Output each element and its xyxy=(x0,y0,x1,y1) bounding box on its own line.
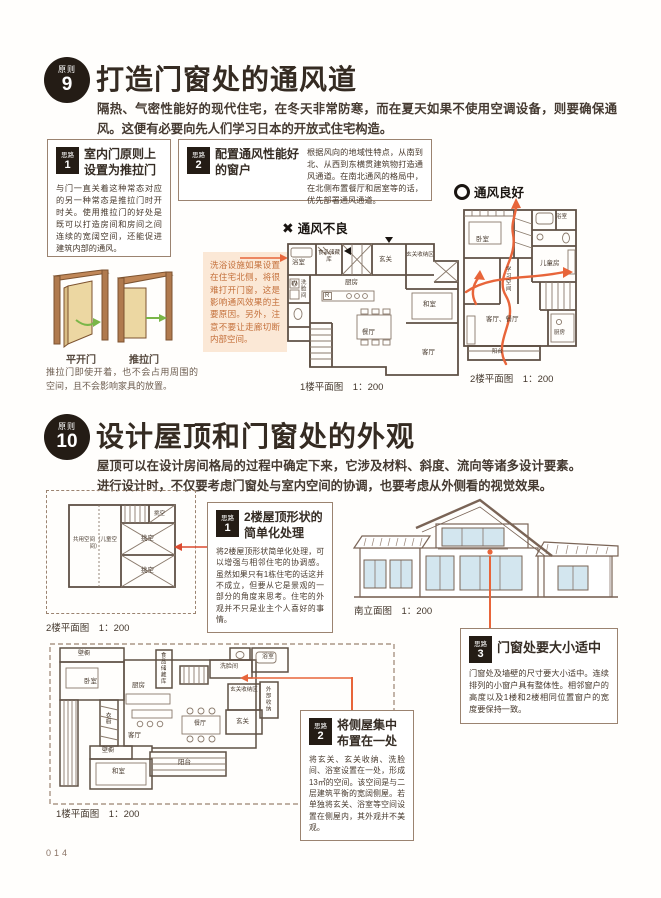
sliding-door-label: 推拉门 xyxy=(129,351,159,366)
room-label: 挑空 xyxy=(141,535,154,543)
principle10-title: 设计屋顶和门窗处的外观 xyxy=(96,415,415,455)
plan-1f-p10-caption: 1楼平面图 1：200 xyxy=(56,806,139,820)
principle10-badge: 原则 10 xyxy=(44,414,90,460)
south-elevation-drawing xyxy=(352,490,620,606)
plan-2f-p9: 卧室 浴室 儿童房 学习空间 客厅、餐厅 厨房 阳台 xyxy=(456,198,584,368)
p9-idea2-body: 根据风向的地域性特点，从南到北、从西到东横贯建筑物打造通风通道。在南北通风的格局… xyxy=(307,147,423,193)
plan-2f-p10-caption: 2楼平面图 1：200 xyxy=(46,620,129,634)
book-page: 原则 9 打造门窗处的通风道 隔热、气密性能好的现代住宅，在冬天非常防寒，而在夏… xyxy=(0,0,661,898)
p10-idea3-body: 门窗处及墙壁的尺寸要大小适中。连续排列的小窗户具有整体性。相邻窗户的高度以及1楼… xyxy=(469,668,609,716)
room-label: 客厅、餐厅 xyxy=(486,316,519,324)
p9-idea1-box: 思路 1 室内门原则上设置为推拉门 与门一直关着这种常态对应的另一种常态是推拉门… xyxy=(47,139,171,257)
room-label: 厨房 xyxy=(554,330,565,337)
elevation-caption: 南立面图 1：200 xyxy=(354,603,432,617)
principle9-badge: 原则 9 xyxy=(44,57,90,103)
p10-idea3-heading: 门窗处要大小适中 xyxy=(497,636,601,657)
airflow-arrows xyxy=(466,208,564,364)
p10-idea2-badge: 思路 2 xyxy=(309,718,332,745)
door-types-illustration xyxy=(48,262,196,350)
p9-idea2-badge-label: 思路 xyxy=(187,149,210,159)
p10-idea2-badge-number: 2 xyxy=(309,730,332,742)
p10-idea1-header: 思路 1 2楼屋顶形状的简单化处理 xyxy=(216,510,324,541)
room-label: 浴室 xyxy=(556,214,567,221)
plan-1f-p9-caption: 1楼平面图 1：200 xyxy=(300,379,383,393)
room-label: 厨房 xyxy=(345,279,358,287)
room-label: 挑空 xyxy=(141,567,154,575)
room-label: 玄关 xyxy=(236,718,249,726)
south-elevation xyxy=(352,490,620,606)
p10-idea1-body: 将2楼屋顶形状简单化处理，可以增强与相邻住宅的协调感。虽然如果只有1栋住宅的话这… xyxy=(216,546,324,625)
p9-idea2-badge: 思路 2 xyxy=(187,147,210,174)
room-label: 挑空 xyxy=(154,511,165,518)
idea3-connector-line xyxy=(489,556,491,630)
room-label: 壁橱 xyxy=(78,651,90,658)
room-label: 和室 xyxy=(423,301,436,309)
p10-idea3-badge-number: 3 xyxy=(469,648,492,660)
room-label: 阳台 xyxy=(178,759,191,767)
p10-idea1-box: 思路 1 2楼屋顶形状的简单化处理 将2楼屋顶形状简单化处理，可以增强与相邻住宅… xyxy=(207,502,333,633)
room-label: 食品储藏库 xyxy=(316,250,342,263)
annotation-arrow xyxy=(238,252,290,264)
room-label: 食品储藏库 xyxy=(159,652,166,685)
plan-1f-p9: 浴室 食品储藏库 玄关 玄关收纳区 洗脸间 厨房 和室 餐厅 客厅 R W xyxy=(285,235,461,377)
hinged-door-drawing xyxy=(54,270,108,347)
p9-idea2-badge-number: 2 xyxy=(187,159,210,171)
room-label: 玄关收纳区 xyxy=(406,252,434,259)
p10-idea1-badge: 思路 1 xyxy=(216,510,239,537)
page-number: 014 xyxy=(46,848,70,858)
hinged-door-label: 平开门 xyxy=(66,351,96,366)
idea1-pointer-arrow xyxy=(172,541,212,553)
room-label: 餐厅 xyxy=(194,721,206,728)
room-label: 客厅 xyxy=(422,349,435,357)
room-label: 外部收纳 xyxy=(264,686,271,712)
p9-idea2-header: 思路 2 配置通风性能好的窗户 xyxy=(187,147,299,193)
idea2-connector-line xyxy=(351,677,353,710)
p9-idea1-body: 与门一直关着这种常态对应的另一种常态是推拉门时开时关。使用推拉门的好处是既可以打… xyxy=(56,183,162,254)
room-label: 厨房 xyxy=(132,682,145,690)
door-caption: 推拉门即使开着，也不会占用周围的空间，且不会影响家具的放置。 xyxy=(46,366,198,393)
p9-idea1-badge-label: 思路 xyxy=(56,149,79,159)
plan-2f-p9-caption: 2楼平面图 1：200 xyxy=(470,371,553,385)
p10-idea2-badge-label: 思路 xyxy=(309,720,332,730)
bath-annotation: 洗浴设施如果设置在住宅北侧，将很难打开门窗，这是影响通风效果的主要原因。另外，注… xyxy=(203,252,287,352)
p9-idea2-box: 思路 2 配置通风性能好的窗户 根据风向的地域性特点，从南到北、从西到东横贯建筑… xyxy=(178,139,432,201)
p9-idea1-badge: 思路 1 xyxy=(56,147,79,174)
p10-idea2-header: 思路 2 将侧屋集中布置在一处 xyxy=(309,718,405,749)
p10-idea3-header: 思路 3 门窗处要大小适中 xyxy=(469,636,609,663)
plan-2f-p9-drawing xyxy=(456,198,584,368)
room-label: 衣橱 xyxy=(104,712,111,725)
room-label: 壁橱 xyxy=(102,748,114,755)
room-label: 洗脸间 xyxy=(299,279,306,299)
fridge-label: R xyxy=(325,293,329,300)
p10-idea3-badge: 思路 3 xyxy=(469,636,492,663)
p10-idea1-badge-number: 1 xyxy=(216,522,239,534)
room-label: 阳台 xyxy=(492,349,503,356)
room-label: 玄关收纳区 xyxy=(230,687,258,694)
p10-idea3-box: 思路 3 门窗处要大小适中 门窗处及墙壁的尺寸要大小适中。连续排列的小窗户具有整… xyxy=(460,628,618,724)
principle9-intro: 隔热、气密性能好的现代住宅，在冬天非常防寒，而在夏天如果不使用空调设备，则要确保… xyxy=(97,100,617,140)
p10-idea1-badge-label: 思路 xyxy=(216,512,239,522)
p10-idea1-heading: 2楼屋顶形状的简单化处理 xyxy=(244,510,324,541)
p9-idea2-heading: 配置通风性能好的窗户 xyxy=(215,147,299,178)
room-label: 洗脸间 xyxy=(220,664,238,671)
room-label: 共用空间（儿童空间） xyxy=(69,537,121,550)
room-label: 浴室 xyxy=(262,654,274,661)
room-label: 和室 xyxy=(112,768,125,776)
room-label: 卧室 xyxy=(476,236,489,244)
p9-idea1-heading: 室内门原则上设置为推拉门 xyxy=(84,147,162,178)
p9-idea1-header: 思路 1 室内门原则上设置为推拉门 xyxy=(56,147,162,178)
sliding-door-drawing xyxy=(118,272,172,342)
room-label: 学习空间 xyxy=(504,266,511,292)
x-mark-icon: ✖ xyxy=(282,221,294,235)
p10-idea2-box: 思路 2 将侧屋集中布置在一处 将玄关、玄关收纳、洗脸间、浴室设置在一处，形成1… xyxy=(300,710,414,841)
room-label: 浴室 xyxy=(292,259,305,267)
p10-idea2-body: 将玄关、玄关收纳、洗脸间、浴室设置在一处，形成13㎡的空间。该空间是与二层建筑平… xyxy=(309,754,405,833)
p10-idea3-badge-label: 思路 xyxy=(469,638,492,648)
room-label: 儿童房 xyxy=(540,260,560,268)
p10-idea2-heading: 将侧屋集中布置在一处 xyxy=(337,718,405,749)
p9-idea1-badge-number: 1 xyxy=(56,159,79,171)
washer-label: W xyxy=(292,281,298,288)
room-label: 餐厅 xyxy=(362,329,375,337)
principle10-badge-number: 10 xyxy=(44,432,90,451)
principle9-badge-number: 9 xyxy=(44,75,90,94)
idea2-pointer-arrow xyxy=(238,672,356,684)
room-label: 玄关 xyxy=(379,256,392,264)
room-label: 卧室 xyxy=(84,678,97,686)
principle9-title: 打造门窗处的通风道 xyxy=(96,58,357,98)
room-label: 客厅 xyxy=(128,732,141,740)
